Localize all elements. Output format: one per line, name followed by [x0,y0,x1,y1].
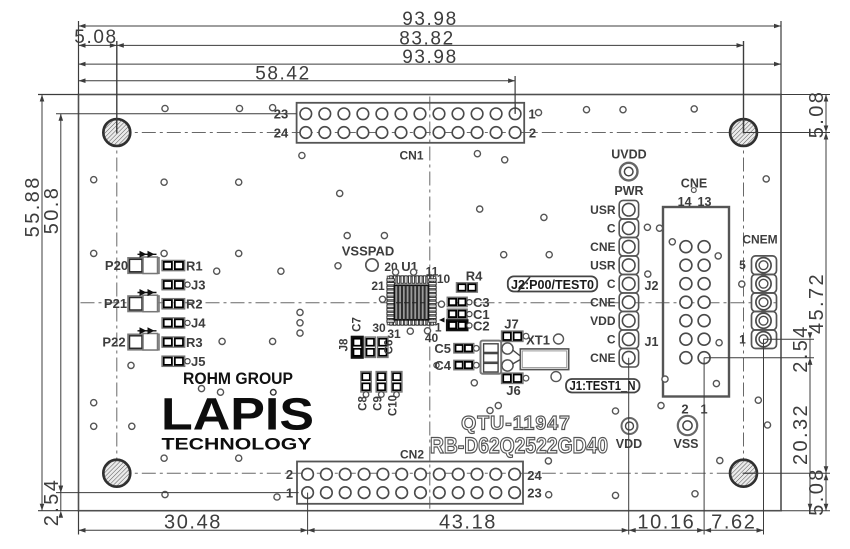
svg-text:1: 1 [435,321,442,335]
svg-text:1: 1 [528,107,535,122]
svg-text:2.54: 2.54 [41,478,63,527]
svg-text:31: 31 [387,327,401,341]
svg-text:QTU-11947: QTU-11947 [461,413,571,435]
svg-text:VSS: VSS [673,437,698,451]
svg-text:2: 2 [681,402,688,417]
svg-text:C7: C7 [352,317,364,332]
svg-text:USR: USR [590,259,616,273]
svg-text:C5: C5 [434,341,451,356]
svg-text:C: C [607,222,616,236]
svg-text:7.62: 7.62 [711,512,756,534]
svg-text:50.8: 50.8 [41,186,63,235]
svg-text:USR: USR [590,203,616,217]
svg-text:24: 24 [527,468,542,483]
svg-text:CNE: CNE [590,296,615,310]
svg-text:5.08: 5.08 [74,27,117,48]
svg-text:P20: P20 [105,258,128,273]
svg-text:5.08: 5.08 [806,467,828,516]
svg-text:C4: C4 [434,358,451,373]
svg-text:VSSPAD: VSSPAD [342,243,395,258]
svg-text:21: 21 [371,279,385,293]
svg-text:24: 24 [274,125,289,140]
svg-text:C2: C2 [473,318,490,333]
svg-text:43.18: 43.18 [439,512,497,534]
svg-text:C: C [607,277,616,291]
svg-text:P21: P21 [104,296,127,311]
svg-text:5.08: 5.08 [806,90,828,139]
svg-text:13: 13 [698,195,712,209]
svg-text:R2: R2 [186,297,203,312]
svg-text:C6: C6 [384,340,396,355]
svg-text:J2: J2 [645,279,659,293]
svg-text:LAPIS: LAPIS [161,388,314,439]
svg-text:J3: J3 [191,277,205,292]
svg-text:1: 1 [739,333,746,347]
svg-text:J5: J5 [191,354,205,369]
svg-text:30.48: 30.48 [164,512,222,534]
svg-text:2: 2 [286,467,293,482]
svg-text:CN1: CN1 [399,149,423,163]
svg-text:C: C [607,333,616,347]
svg-text:93.98: 93.98 [402,47,458,68]
svg-text:20.32: 20.32 [790,403,812,465]
svg-text:C10: C10 [388,395,400,416]
svg-text:5: 5 [739,258,746,272]
svg-text:VDD: VDD [590,314,616,328]
svg-text:58.42: 58.42 [255,63,311,84]
svg-text:2: 2 [529,125,536,140]
svg-text:30: 30 [372,321,386,335]
svg-text:J8: J8 [339,338,351,351]
svg-text:R3: R3 [186,335,203,350]
svg-text:J4: J4 [191,316,206,331]
svg-text:UVDD: UVDD [611,148,646,162]
svg-text:J7: J7 [504,317,518,332]
svg-text:C8: C8 [358,396,370,411]
svg-text:R4: R4 [466,268,483,283]
svg-text:J6: J6 [506,383,520,398]
svg-text:TECHNOLOGY: TECHNOLOGY [162,435,312,454]
svg-text:C9: C9 [373,396,385,411]
svg-text:J1: J1 [645,335,659,349]
svg-text:93.98: 93.98 [402,9,458,30]
svg-text:R1: R1 [186,258,203,273]
svg-text:P22: P22 [102,334,125,349]
svg-text:10.16: 10.16 [637,512,695,534]
svg-text:CN2: CN2 [400,448,424,462]
svg-text:XT1: XT1 [526,333,550,348]
svg-text:10: 10 [437,272,451,286]
svg-text:CNE: CNE [590,240,615,254]
svg-text:14: 14 [678,195,692,209]
svg-text:ROHM GROUP: ROHM GROUP [183,370,293,388]
svg-text:CNE: CNE [590,351,615,365]
svg-text:23: 23 [527,485,541,500]
svg-text:PWR: PWR [614,184,643,198]
svg-text:CNEM: CNEM [742,233,777,247]
svg-text:J1:TEST1_N: J1:TEST1_N [570,379,636,393]
svg-text:RB-D62Q2522GD40: RB-D62Q2522GD40 [430,433,608,458]
svg-text:2.54: 2.54 [790,324,812,373]
